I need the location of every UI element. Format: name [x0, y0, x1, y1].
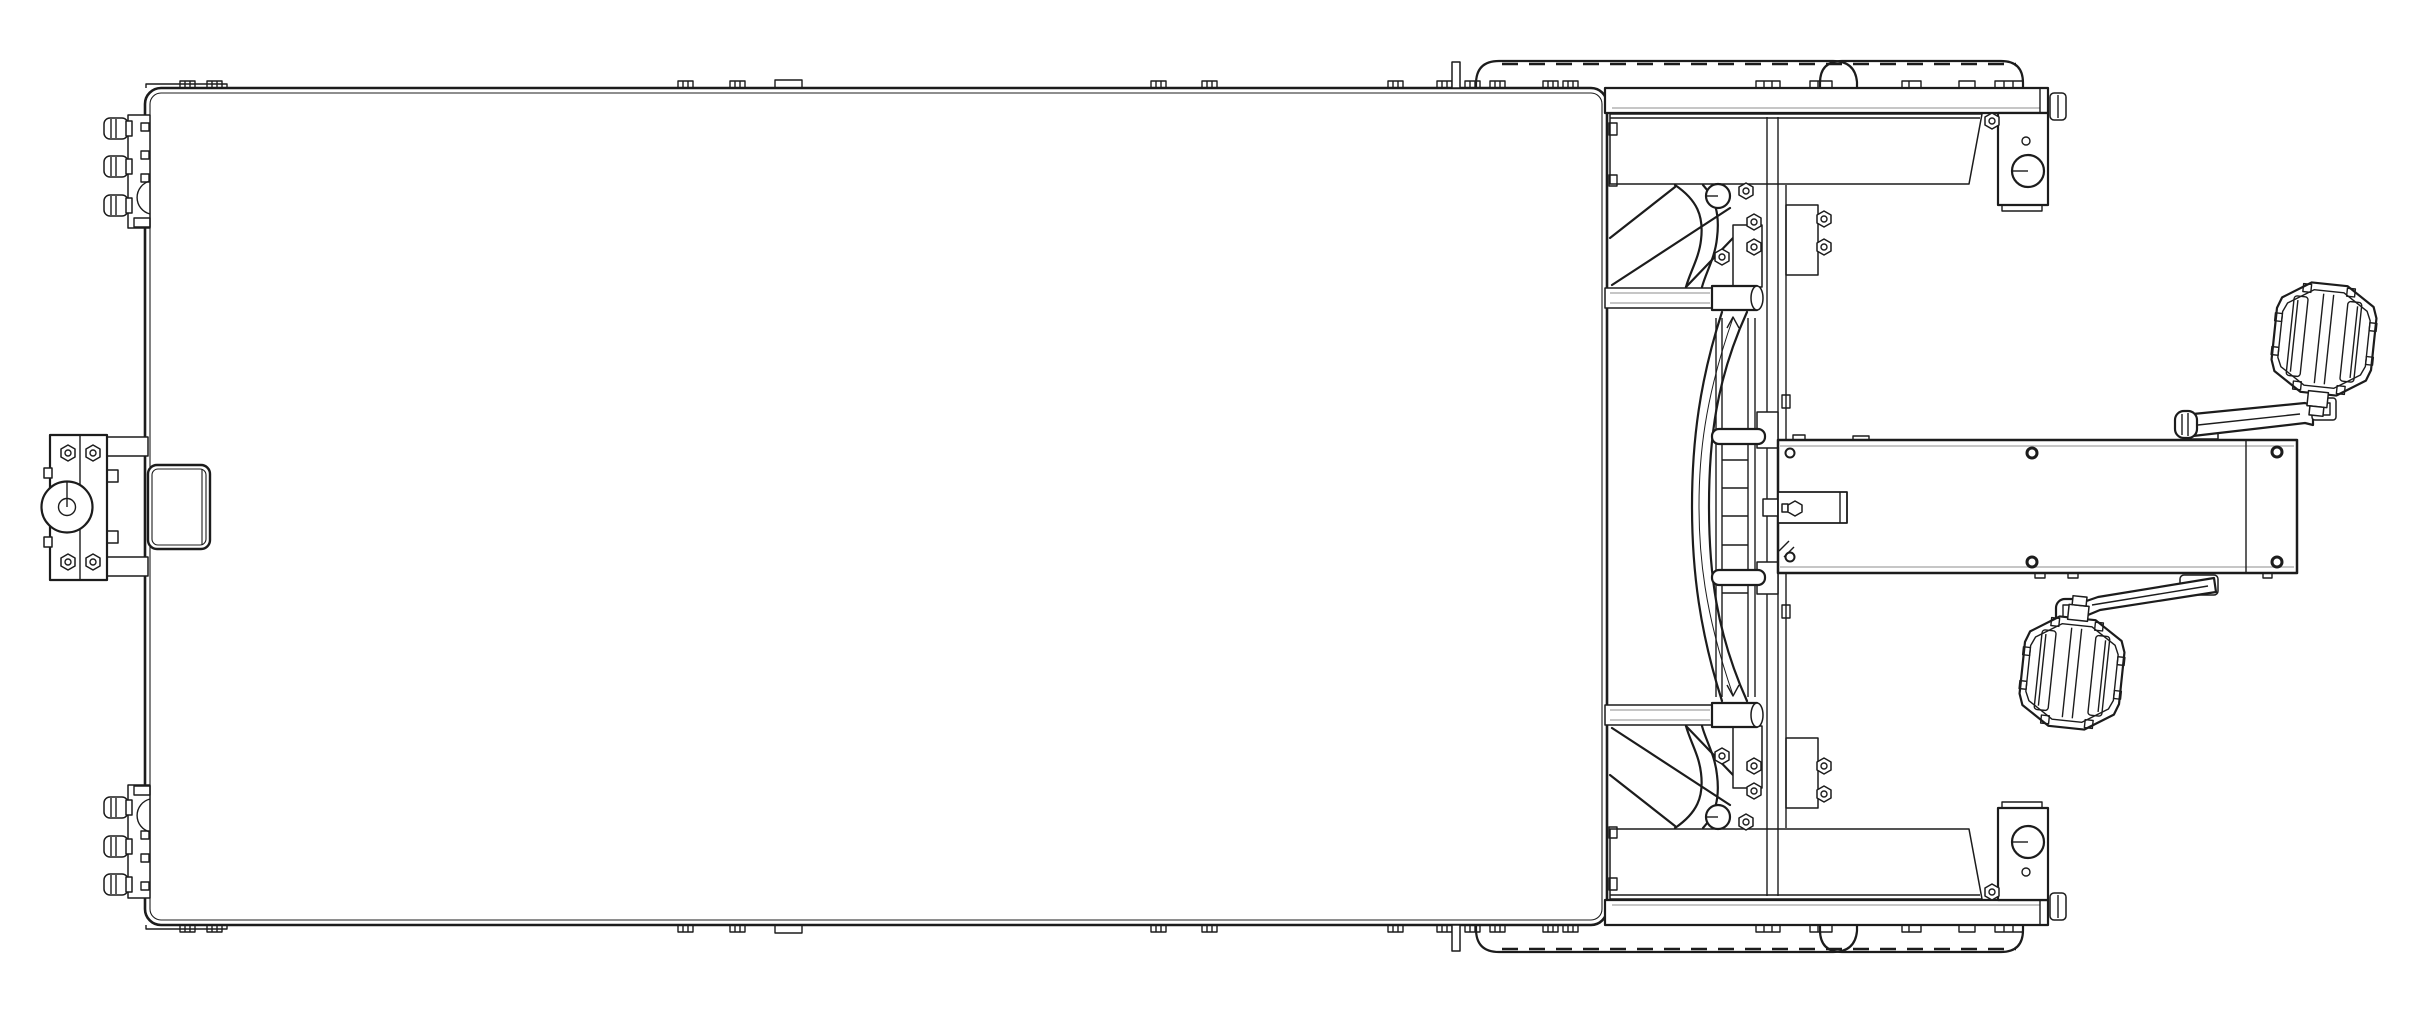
- pinch-bolt: [1788, 501, 1802, 516]
- receiver-tube: [148, 465, 210, 549]
- cad-drawing: Technical line drawing — pedal-drive fla…: [0, 0, 2409, 1020]
- tongue: [1763, 492, 1847, 523]
- deck: [145, 88, 1607, 925]
- curved-frame-tubes: [1692, 312, 1747, 701]
- boom: [1763, 435, 2297, 578]
- pedal-top: [2265, 279, 2380, 421]
- clamp-bottom: [1712, 570, 1765, 585]
- drawing-sheet: Technical line drawing — pedal-drive fla…: [0, 0, 2409, 1020]
- pedal-bottom: [2016, 591, 2131, 733]
- clamp-top: [1712, 429, 1765, 444]
